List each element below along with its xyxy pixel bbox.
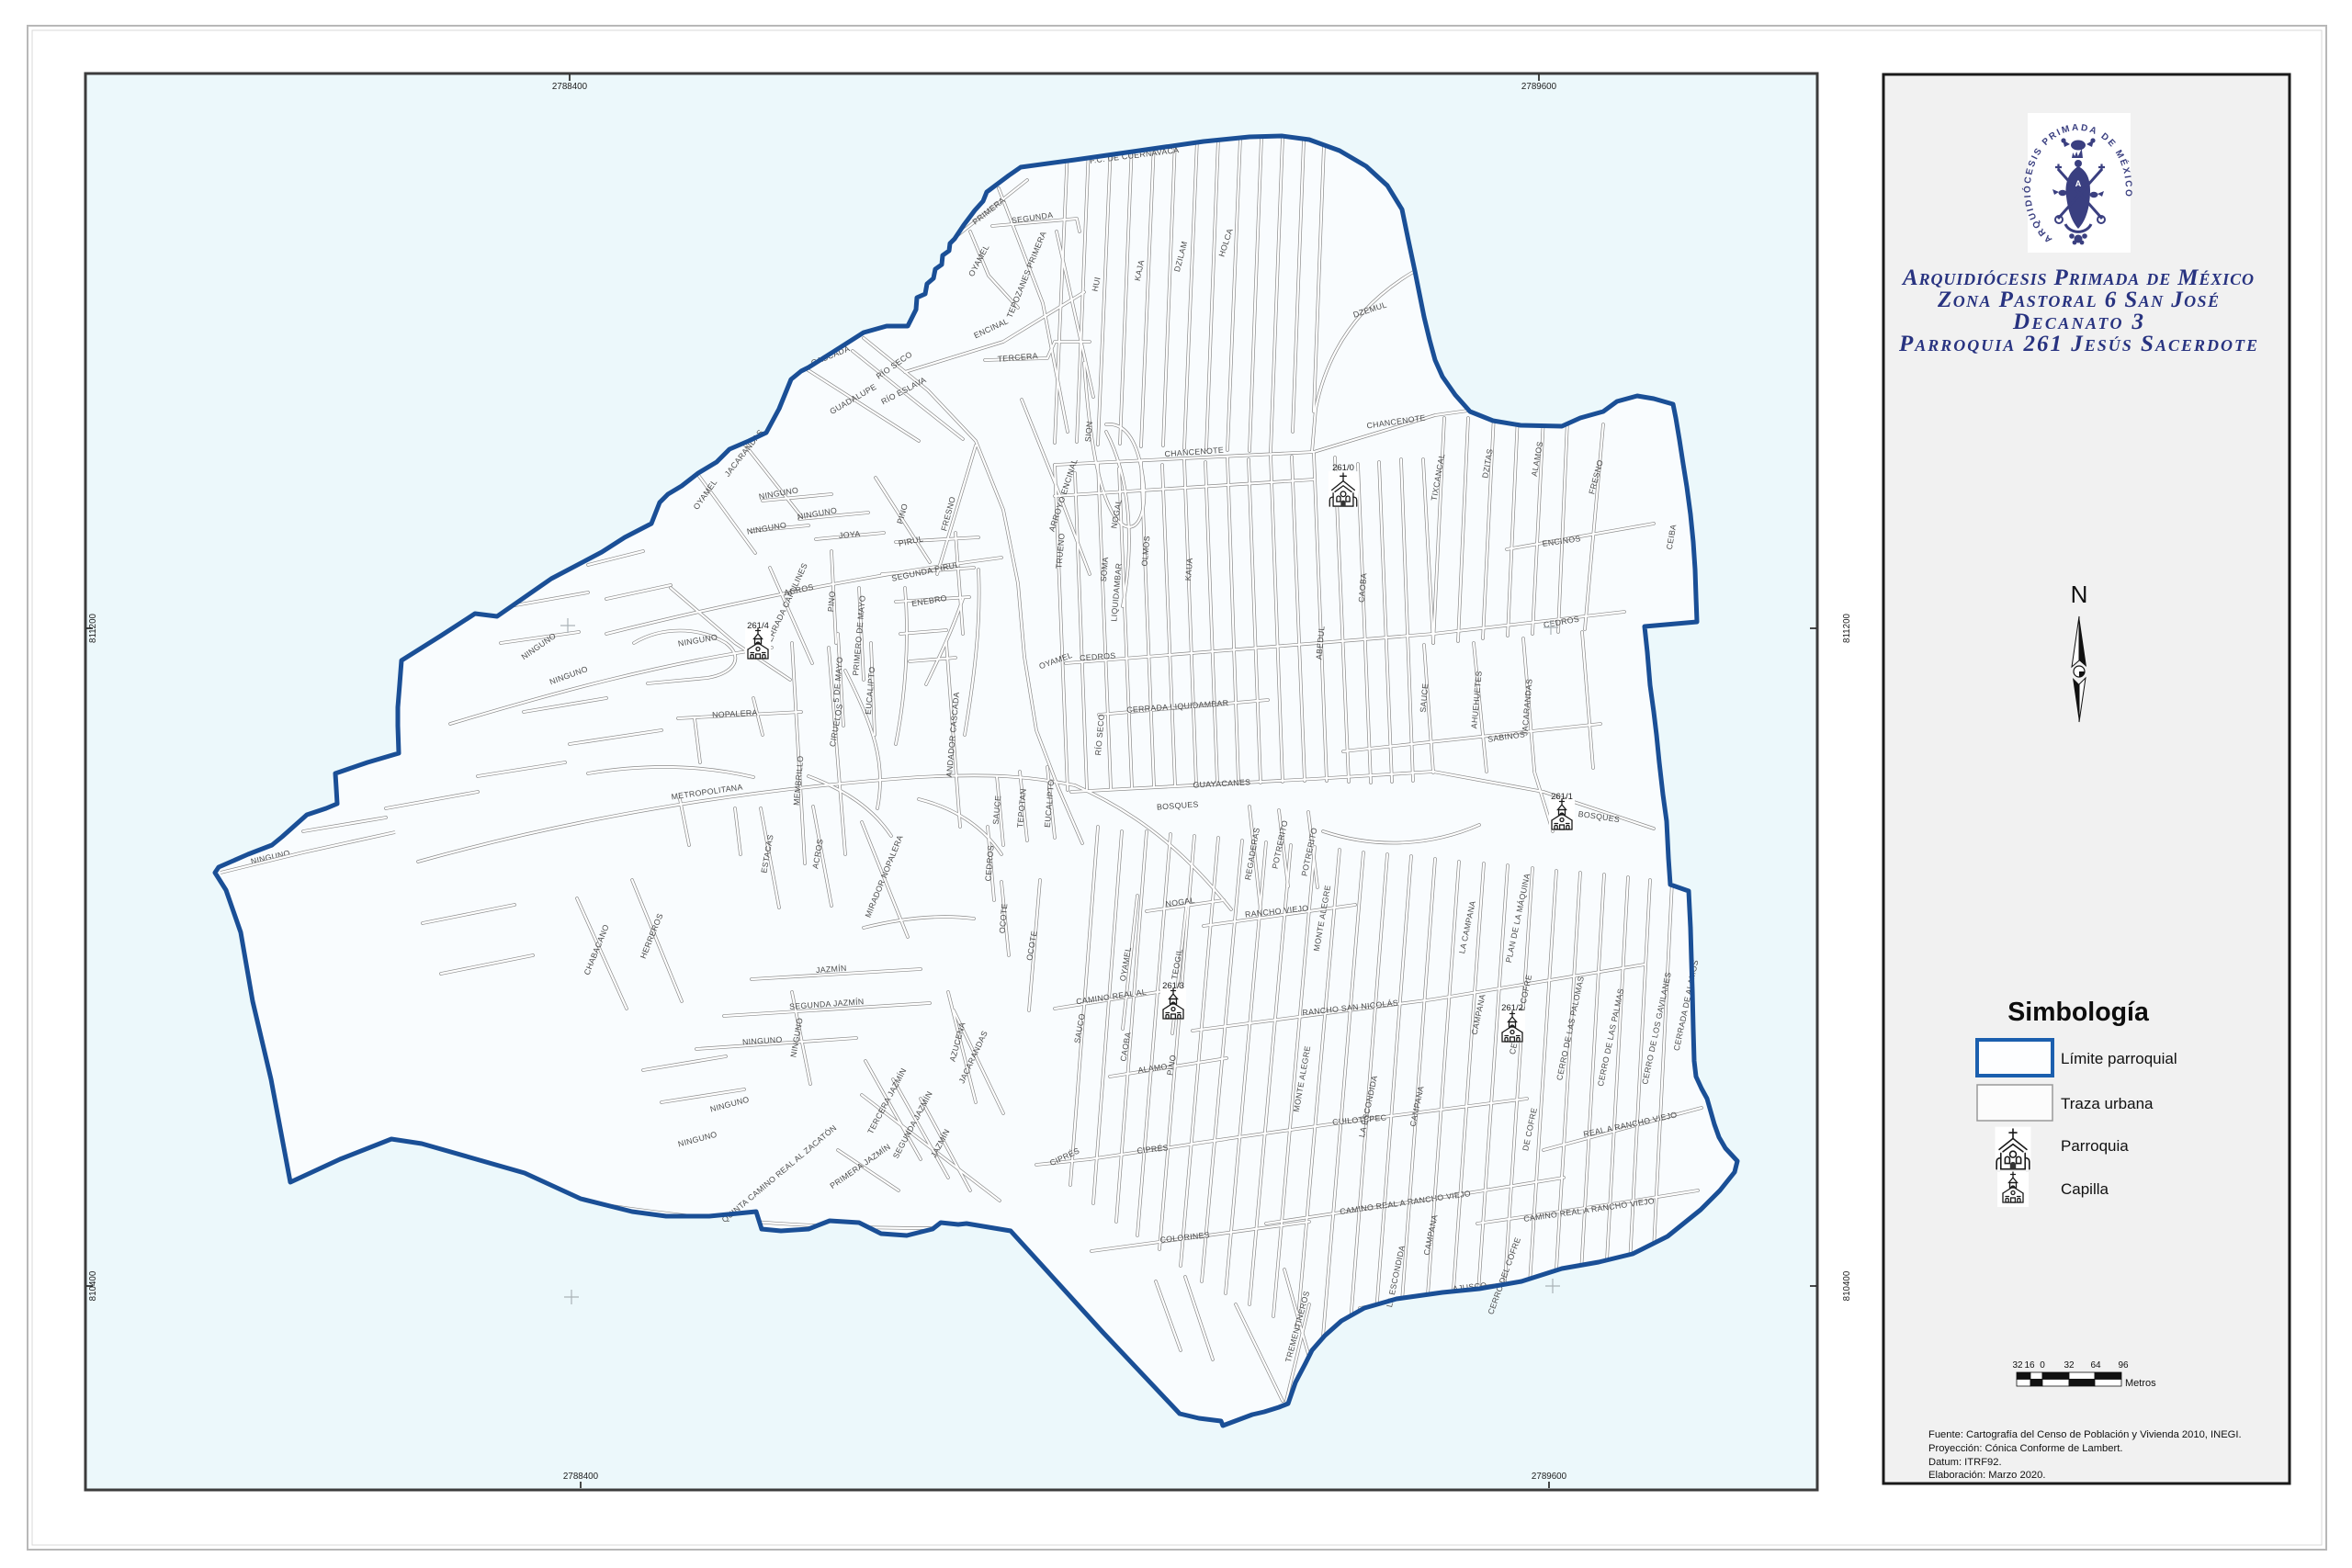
svg-text:JOYA: JOYA [839,529,861,540]
svg-text:2788400: 2788400 [552,82,588,92]
svg-text:2789600: 2789600 [1532,1472,1567,1482]
svg-text:A: A [2075,179,2082,188]
svg-text:Traza urbana: Traza urbana [2061,1095,2154,1112]
svg-text:32: 32 [2012,1360,2023,1371]
svg-text:2789600: 2789600 [1521,82,1557,92]
svg-text:0: 0 [2040,1360,2045,1371]
svg-text:Fuente: Cartografía del Censo: Fuente: Cartografía del Censo de Poblaci… [1928,1429,2242,1440]
svg-text:261/2: 261/2 [1501,1003,1523,1013]
svg-text:Capilla: Capilla [2061,1180,2109,1198]
svg-text:Simbología: Simbología [2007,998,2150,1027]
svg-text:810400: 810400 [88,1270,98,1301]
svg-text:261/1: 261/1 [1551,792,1573,802]
svg-text:261/0: 261/0 [1332,463,1354,473]
svg-text:16: 16 [2024,1360,2035,1371]
svg-text:Datum: ITRF92.: Datum: ITRF92. [1928,1457,2002,1468]
svg-text:Metros: Metros [2125,1378,2156,1389]
svg-text:Proyección: Cónica Conforme de: Proyección: Cónica Conforme de Lambert. [1928,1443,2122,1454]
svg-text:Zona Pastoral 6 San José: Zona Pastoral 6 San José [1937,288,2219,312]
svg-text:N: N [2071,581,2088,608]
svg-text:Decanato 3: Decanato 3 [2012,310,2143,334]
svg-text:811200: 811200 [88,613,98,643]
svg-text:261/3: 261/3 [1162,981,1184,991]
svg-text:32: 32 [2064,1360,2075,1371]
svg-text:Límite parroquial: Límite parroquial [2061,1050,2177,1067]
svg-text:Arquidiócesis Primada de Méxic: Arquidiócesis Primada de México [1901,265,2254,290]
svg-text:261/4: 261/4 [747,621,769,631]
svg-text:96: 96 [2118,1360,2129,1371]
svg-text:Elaboración: Marzo 2020.: Elaboración: Marzo 2020. [1928,1470,2046,1481]
svg-text:PINO: PINO [826,591,837,613]
svg-text:810400: 810400 [1842,1270,1852,1301]
svg-text:Parroquia: Parroquia [2061,1137,2129,1155]
svg-text:64: 64 [2090,1360,2101,1371]
svg-text:SION: SION [1083,421,1094,443]
svg-text:2788400: 2788400 [563,1472,599,1482]
svg-text:811200: 811200 [1842,613,1852,643]
